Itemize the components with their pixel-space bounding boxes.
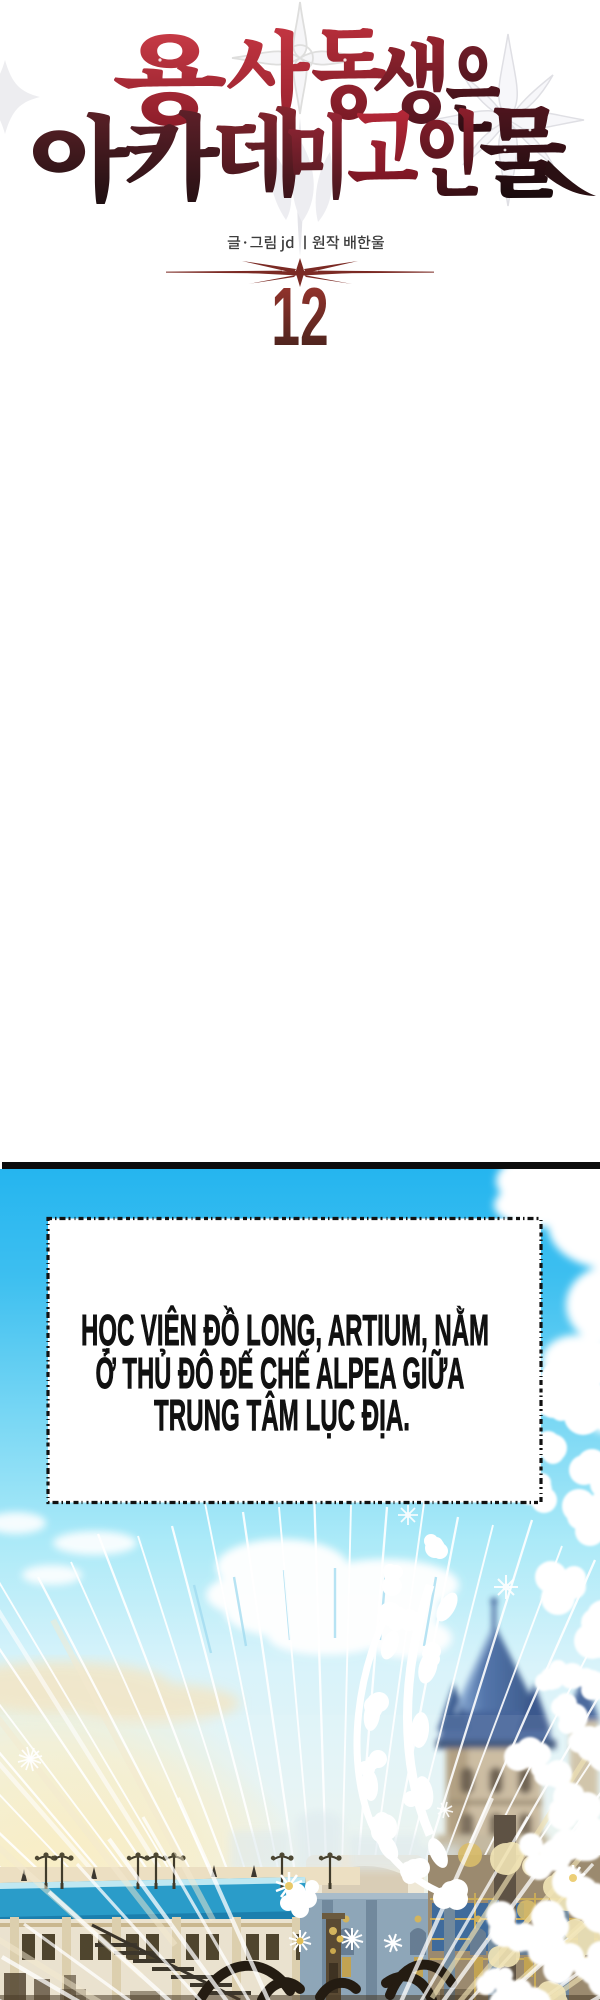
svg-text:Ở THỦ ĐÔ ĐẾ CHẾ ALPEA GIỮA: Ở THỦ ĐÔ ĐẾ CHẾ ALPEA GIỮA (96, 1347, 465, 1398)
svg-text:HỌC VIÊN ĐỒ LONG, ARTIUM, NẰM: HỌC VIÊN ĐỒ LONG, ARTIUM, NẰM (81, 1305, 489, 1355)
svg-text:TRUNG TÂM LỤC ĐỊA.: TRUNG TÂM LỤC ĐỊA. (154, 1390, 410, 1440)
svg-text:12: 12 (271, 269, 328, 363)
